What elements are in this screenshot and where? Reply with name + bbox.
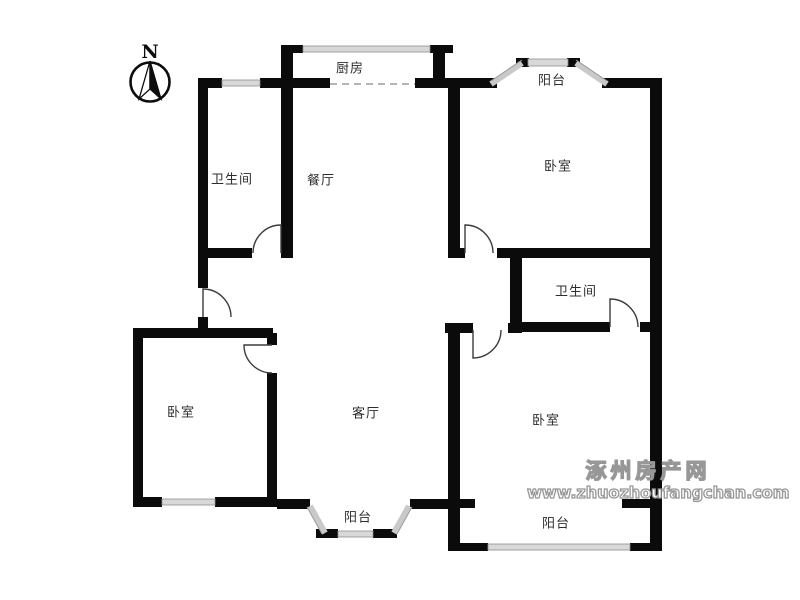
room-label-living-room: 客厅 — [352, 403, 380, 422]
bedroom-northeast-door-arc — [465, 225, 493, 253]
room-label-bedroom-northeast: 卧室 — [544, 156, 572, 175]
room-label-bathroom-west: 卫生间 — [211, 169, 253, 188]
north-compass-icon — [131, 61, 170, 102]
bathroom-west-door-arc — [253, 225, 281, 253]
room-label-bedroom-west: 卧室 — [167, 402, 195, 421]
room-label-balcony-north: 阳台 — [538, 70, 566, 89]
watermark: 涿州房产网 www.zhuozhoufangchan.com — [527, 459, 769, 502]
room-label-bathroom-east: 卫生间 — [555, 281, 597, 300]
entry-door-arc — [203, 289, 231, 317]
room-label-kitchen: 厨房 — [336, 58, 364, 77]
room-label-balcony-southeast: 阳台 — [542, 513, 570, 532]
watermark-site-url: www.zhuozhoufangchan.com — [527, 484, 769, 502]
room-label-balcony-south: 阳台 — [344, 507, 372, 526]
room-label-bedroom-southeast: 卧室 — [532, 410, 560, 429]
bathroom-east-door-arc — [610, 299, 638, 327]
watermark-site-name: 涿州房产网 — [527, 459, 769, 483]
floorplan-canvas: N 厨房 阳台 卫生间 餐厅 卧室 卫生间 卧室 客厅 卧室 阳台 阳台 涿州房… — [0, 0, 800, 600]
bedroom-west-door-arc — [244, 345, 272, 373]
bedroom-southeast-door-arc — [473, 330, 501, 358]
compass-north-label: N — [141, 41, 158, 63]
floorplan-drawing — [0, 0, 800, 600]
room-label-dining-room: 餐厅 — [307, 170, 335, 189]
